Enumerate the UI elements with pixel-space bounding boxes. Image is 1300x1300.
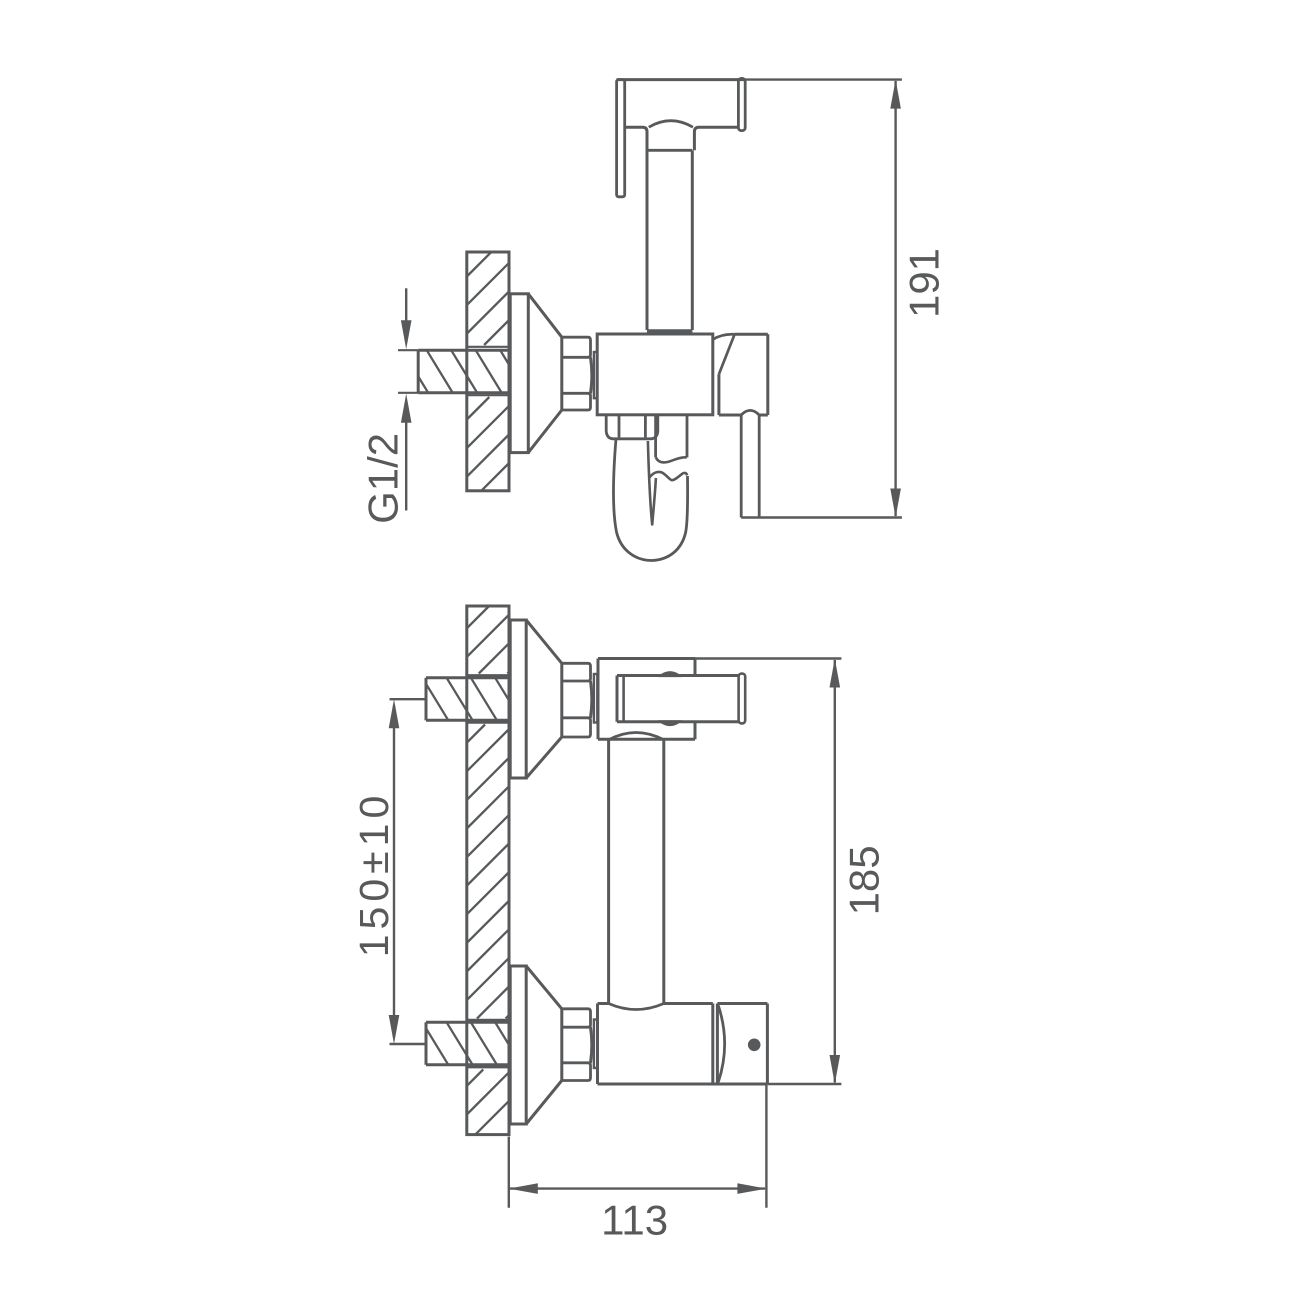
svg-text:150±10: 150±10: [351, 791, 397, 958]
svg-text:191: 191: [901, 248, 948, 318]
svg-text:113: 113: [601, 1197, 668, 1244]
svg-text:185: 185: [840, 845, 887, 915]
svg-text:G1/2: G1/2: [360, 433, 407, 524]
